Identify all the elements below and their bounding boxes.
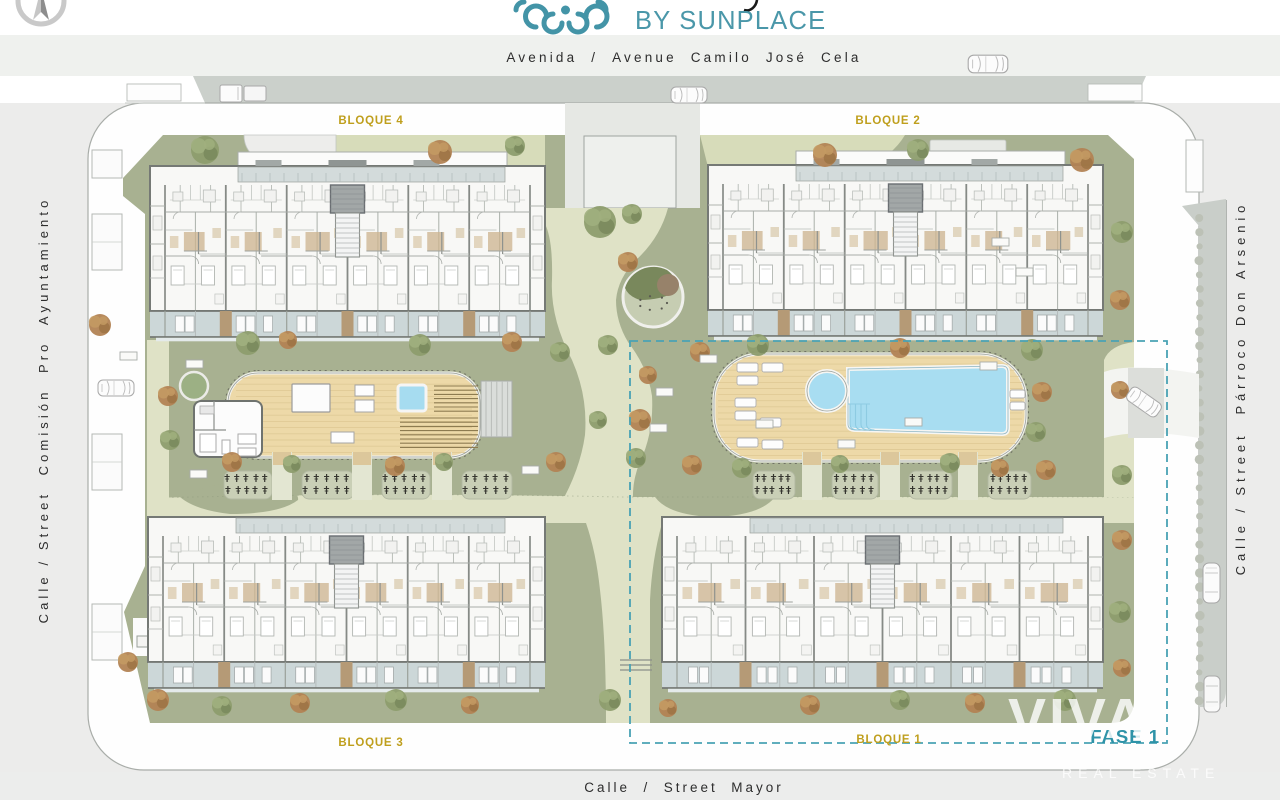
svg-text:BLOQUE 4: BLOQUE 4 <box>338 115 403 127</box>
svg-text:Calle / Street Párroco Don Ar: Calle / Street Párroco Don Arsenio <box>1233 201 1248 576</box>
svg-text:Calle / Street Comisión Pro: Calle / Street Comisión Pro Ayuntamiento <box>36 197 51 624</box>
svg-text:BY SUNPLACE: BY SUNPLACE <box>635 7 826 35</box>
svg-text:BLOQUE 2: BLOQUE 2 <box>855 115 920 127</box>
svg-text:VIVA: VIVA <box>1008 687 1149 751</box>
svg-text:BLOQUE 1: BLOQUE 1 <box>856 734 921 746</box>
svg-text:REAL ESTATE: REAL ESTATE <box>1062 765 1220 781</box>
svg-text:BLOQUE 3: BLOQUE 3 <box>338 737 403 749</box>
svg-text:Calle / Street Mayor: Calle / Street Mayor <box>584 780 784 795</box>
svg-text:Avenida / Avenue Camilo Jo: Avenida / Avenue Camilo José Cela <box>506 50 861 65</box>
